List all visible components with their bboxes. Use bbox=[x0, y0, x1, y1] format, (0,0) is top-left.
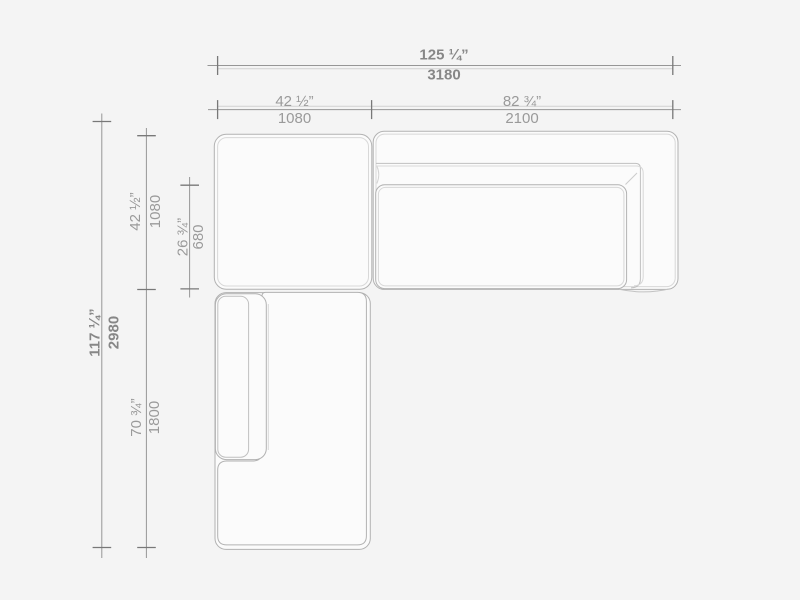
svg-text:125 ¼”: 125 ¼” bbox=[419, 47, 468, 64]
svg-text:3180: 3180 bbox=[427, 66, 460, 83]
svg-text:1080: 1080 bbox=[278, 110, 311, 127]
svg-text:1800: 1800 bbox=[146, 401, 163, 434]
svg-text:82 ¾”: 82 ¾” bbox=[503, 93, 541, 110]
svg-text:2980: 2980 bbox=[105, 316, 122, 349]
svg-text:42 ½”: 42 ½” bbox=[127, 192, 144, 230]
svg-text:70 ¾”: 70 ¾” bbox=[128, 398, 145, 436]
svg-text:1080: 1080 bbox=[147, 195, 164, 228]
svg-text:42 ½”: 42 ½” bbox=[275, 93, 313, 110]
svg-text:2100: 2100 bbox=[505, 110, 538, 127]
svg-text:117 ¼”: 117 ¼” bbox=[86, 308, 103, 356]
svg-text:680: 680 bbox=[190, 224, 207, 249]
svg-text:26 ¾”: 26 ¾” bbox=[174, 218, 191, 256]
